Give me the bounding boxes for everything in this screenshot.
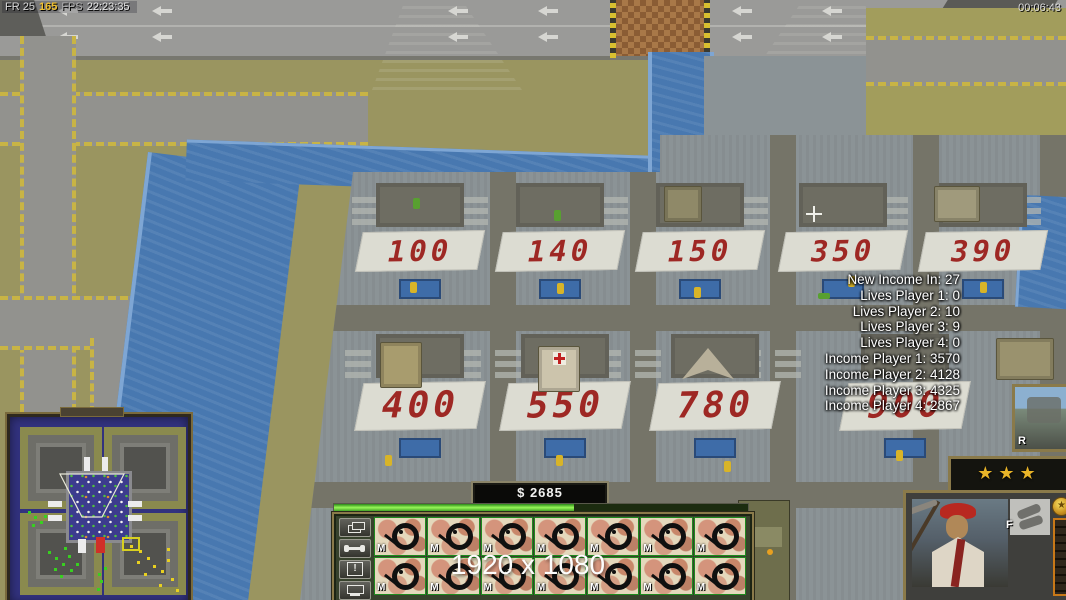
fps-value: 165 — [39, 1, 57, 13]
red-cross-icon — [553, 352, 566, 365]
mine-detector-icon — [659, 523, 686, 550]
pad-water-inset — [544, 438, 586, 458]
hotkey-label: M — [484, 582, 492, 593]
hotkey-label: M — [377, 582, 385, 593]
hotkey-label: M — [377, 543, 385, 554]
road-arrow-left-icon — [152, 6, 174, 17]
status-line: Income Player 2: 4128 — [825, 367, 960, 383]
status-line: Income Player 3: 4325 — [825, 383, 960, 399]
pad-price-label: 150 — [635, 230, 765, 272]
hotkey-label: M — [537, 582, 545, 593]
window-stack-button[interactable] — [339, 518, 371, 537]
rank-stars: ★★★ — [977, 463, 1040, 483]
minimap-view-frustum — [10, 417, 182, 597]
hotkey-label: F — [1006, 519, 1013, 531]
status-panel: New Income In: 27Lives Player 1: 0Lives … — [825, 272, 960, 414]
unit-tank[interactable] — [996, 338, 1054, 380]
pad-water-inset — [399, 438, 441, 458]
experience-bar — [1053, 518, 1066, 596]
road-arrow-left-icon — [152, 32, 174, 43]
mine-detector-icon — [712, 563, 739, 590]
road-arrow-left-icon — [538, 32, 560, 43]
pad-water-inset — [884, 438, 926, 458]
command-button-mine[interactable]: M — [640, 517, 692, 556]
pad-water-inset — [399, 279, 441, 299]
minimap[interactable] — [7, 414, 191, 600]
fps-prefix: FR 25 — [5, 1, 35, 13]
unit-humvee[interactable] — [934, 186, 980, 222]
terrain-road — [866, 36, 1066, 86]
hazard-stripe — [704, 0, 710, 58]
road-arrow-left-icon — [732, 6, 754, 17]
fps-label: FPS — [61, 1, 82, 13]
pad-water-inset — [694, 438, 736, 458]
mine-detector-icon — [659, 563, 686, 590]
status-line: Lives Player 1: 0 — [825, 288, 960, 304]
status-line: Lives Player 3: 9 — [825, 319, 960, 335]
unit-artillery[interactable] — [664, 186, 702, 222]
clock-right: 00:06:43 — [1018, 2, 1061, 14]
pad-tile[interactable]: 140 — [494, 183, 626, 299]
status-line: Income Player 1: 3570 — [825, 351, 960, 367]
terrain-grass-right — [866, 8, 1066, 138]
power-bar-fill — [334, 504, 574, 512]
mine-detector-icon — [712, 523, 739, 550]
money-amount: $ 2685 — [517, 485, 563, 500]
crosshair-cursor-icon — [806, 206, 822, 222]
mine-detector-icon — [499, 523, 526, 550]
status-line: Income Player 4: 2867 — [825, 398, 960, 414]
unit-soldier-yellow[interactable] — [385, 455, 392, 466]
unit-soldier-yellow[interactable] — [724, 461, 731, 472]
command-button-mine[interactable]: M — [640, 557, 692, 596]
fps-overlay: FR 25165FPS22:23:35 — [2, 1, 137, 13]
hotkey-label: M — [697, 582, 705, 593]
unit-soldier-yellow[interactable] — [557, 283, 564, 294]
hotkey-label: M — [697, 543, 705, 554]
hotkey-label: M — [430, 582, 438, 593]
pad-tile[interactable]: 100 — [354, 183, 486, 299]
unit-soldier-green[interactable] — [413, 198, 420, 209]
boots-upgrade-button[interactable] — [1010, 499, 1050, 535]
road-arrow-left-icon — [538, 6, 560, 17]
pad-price-label: 100 — [355, 230, 485, 272]
command-button-mine[interactable]: M — [694, 557, 746, 596]
selected-unit-panel: F ★ — [903, 490, 1066, 600]
hotkey-label: M — [643, 582, 651, 593]
status-line: Lives Player 2: 10 — [825, 304, 960, 320]
mine-detector-icon — [552, 523, 579, 550]
clock-left: 22:23:35 — [87, 1, 130, 13]
pad-price-label: 350 — [778, 230, 908, 272]
pad-price-label: 390 — [918, 230, 1048, 272]
terrain-road — [20, 36, 76, 412]
status-line: New Income In: 27 — [825, 272, 960, 288]
hazard-stripe — [610, 0, 616, 58]
terrain-crossing-checker — [616, 0, 704, 56]
repair-button[interactable] — [339, 539, 371, 558]
build-queue-button[interactable]: R — [1012, 384, 1066, 452]
pad-price-label: 400 — [354, 381, 486, 431]
rank-star-emblem: ★ — [1052, 497, 1066, 516]
hotkey-label: R — [1018, 435, 1026, 447]
status-line: Lives Player 4: 0 — [825, 335, 960, 351]
resolution-overlay: 1920 x 1080 — [408, 549, 648, 581]
mine-detector-icon — [392, 523, 419, 550]
pad-building-slab — [376, 183, 464, 227]
unit-portrait[interactable] — [912, 499, 1008, 587]
unit-ambulance[interactable] — [538, 346, 580, 392]
unit-truck[interactable] — [380, 342, 422, 388]
hotkey-label: M — [590, 582, 598, 593]
pad-price-label: 140 — [495, 230, 625, 272]
worker-face — [946, 515, 968, 539]
pad-tile[interactable]: 780 — [649, 334, 781, 458]
unit-soldier-yellow[interactable] — [896, 450, 903, 461]
road-arrow-left-icon — [732, 32, 754, 43]
unit-soldier-green[interactable] — [554, 210, 561, 221]
terrain-concrete-north — [704, 56, 866, 140]
exclamation-icon: ! — [347, 562, 363, 576]
command-button-mine[interactable]: M — [694, 517, 746, 556]
unit-soldier-yellow[interactable] — [410, 282, 417, 293]
unit-soldier-yellow[interactable] — [694, 287, 701, 298]
sell-button[interactable] — [339, 581, 371, 600]
mine-detector-icon — [605, 523, 632, 550]
pad-price-label: 780 — [649, 381, 781, 431]
alert-button[interactable]: ! — [339, 560, 371, 579]
unit-soldier-yellow[interactable] — [980, 282, 987, 293]
unit-soldier-yellow[interactable] — [556, 455, 563, 466]
mine-detector-icon — [446, 523, 473, 550]
